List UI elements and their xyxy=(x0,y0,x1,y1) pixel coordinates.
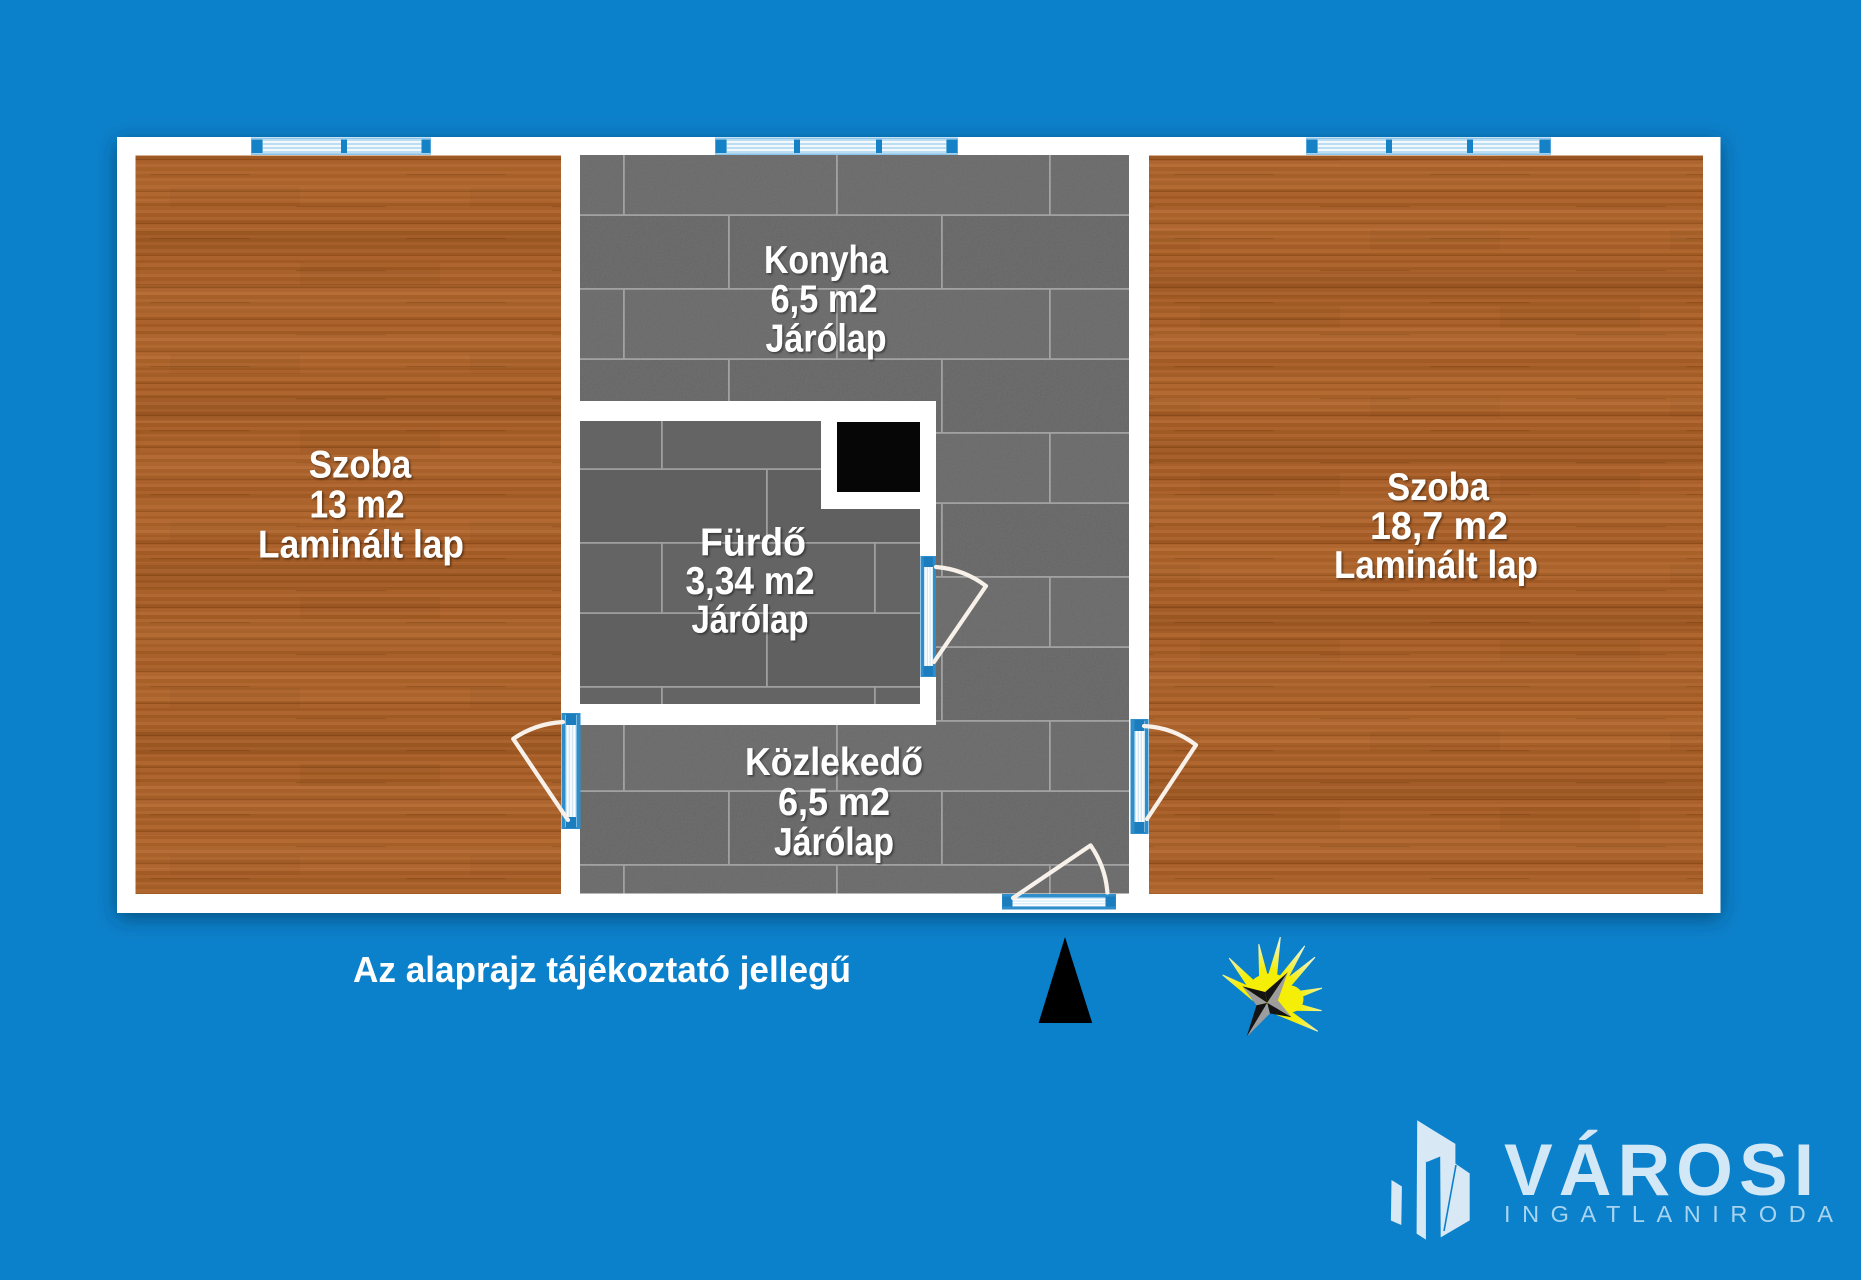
svg-text:Szoba: Szoba xyxy=(1387,466,1489,509)
svg-text:Közlekedő: Közlekedő xyxy=(745,741,923,784)
svg-text:Szoba: Szoba xyxy=(309,444,412,487)
svg-text:Laminált lap: Laminált lap xyxy=(1334,544,1538,587)
svg-text:Laminált lap: Laminált lap xyxy=(258,524,464,567)
svg-text:3,34 m2: 3,34 m2 xyxy=(686,560,815,603)
svg-text:VÁROSI: VÁROSI xyxy=(1504,1130,1814,1211)
svg-text:Fürdő: Fürdő xyxy=(700,522,806,565)
svg-text:Járólap: Járólap xyxy=(774,821,894,864)
svg-text:13 m2: 13 m2 xyxy=(310,484,405,527)
svg-text:Konyha: Konyha xyxy=(764,239,888,282)
svg-text:Járólap: Járólap xyxy=(692,599,809,642)
svg-text:6,5 m2: 6,5 m2 xyxy=(778,781,890,824)
svg-text:Az alaprajz tájékoztató jelleg: Az alaprajz tájékoztató jellegű xyxy=(353,949,851,990)
svg-text:Járólap: Járólap xyxy=(766,318,887,361)
svg-text:6,5 m2: 6,5 m2 xyxy=(771,278,878,321)
svg-text:18,7 m2: 18,7 m2 xyxy=(1370,505,1508,548)
